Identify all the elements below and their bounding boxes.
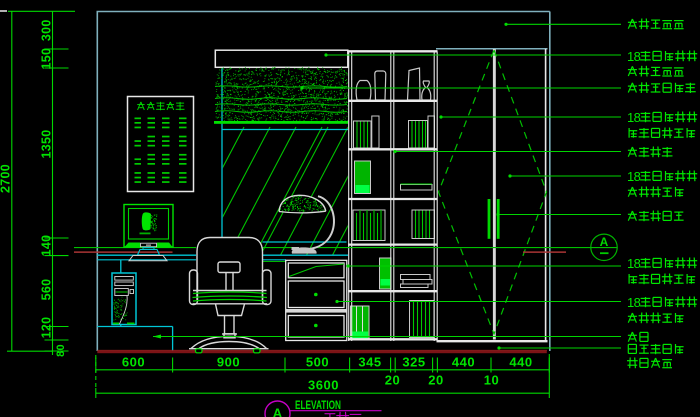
- svg-text:140: 140: [40, 235, 54, 257]
- svg-text:8: 8: [634, 256, 641, 271]
- svg-text:560: 560: [40, 279, 54, 301]
- svg-text:120: 120: [40, 317, 54, 339]
- svg-text:345: 345: [358, 354, 381, 369]
- svg-text:440: 440: [452, 354, 475, 369]
- svg-text:8: 8: [634, 295, 641, 310]
- svg-text:440: 440: [509, 354, 532, 369]
- svg-text:20: 20: [428, 373, 443, 388]
- svg-text:8: 8: [634, 169, 641, 184]
- svg-text:20: 20: [385, 373, 400, 388]
- svg-text:8: 8: [634, 110, 641, 125]
- svg-text:150: 150: [40, 48, 54, 70]
- svg-text:300: 300: [40, 19, 54, 41]
- svg-text:1350: 1350: [40, 129, 54, 158]
- svg-text:2700: 2700: [0, 164, 13, 193]
- svg-text:3600: 3600: [308, 378, 339, 393]
- svg-text:A: A: [273, 406, 283, 417]
- svg-text:8: 8: [634, 49, 641, 64]
- svg-text:A: A: [600, 235, 609, 249]
- svg-text:10: 10: [484, 373, 499, 388]
- svg-text:600: 600: [122, 354, 145, 369]
- svg-text:325: 325: [402, 354, 425, 369]
- svg-text:500: 500: [306, 354, 329, 369]
- svg-text:900: 900: [217, 354, 240, 369]
- svg-text:80: 80: [55, 344, 67, 357]
